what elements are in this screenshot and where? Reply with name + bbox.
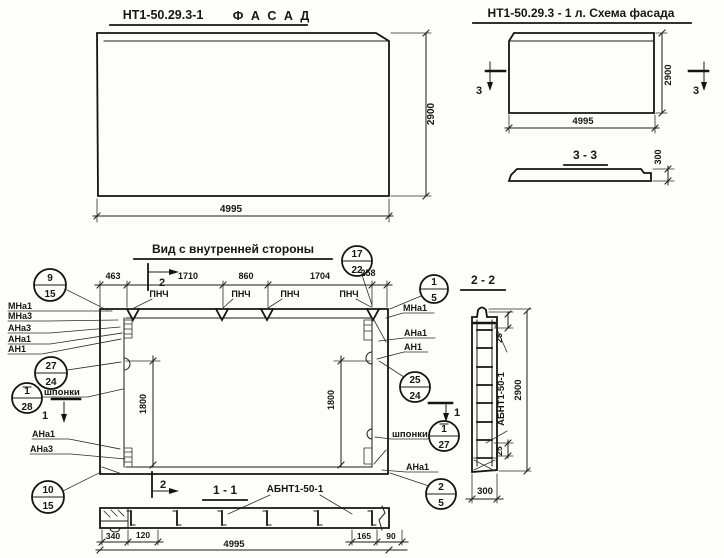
label-an1-right: АН1 — [404, 342, 422, 352]
drawing-sheet: НТ1-50.29.3-1 Ф А С А Д 4995 2900 НТ1-50… — [0, 0, 724, 558]
loop-label-1: ПНЧ — [149, 289, 168, 299]
scheme-dim-height: 2900 — [663, 64, 674, 85]
dim-300-section: 300 — [477, 486, 493, 497]
callout-9-15: 9 15 — [34, 269, 107, 310]
section-3-3-dimension: 300 — [653, 149, 674, 185]
keys-label-right: шпонки — [392, 429, 428, 440]
callout-17-22-bottom: 22 — [351, 265, 363, 276]
section-3-3-title: 3 - 3 — [564, 148, 607, 165]
inner-section1-marker-left: 1 — [42, 399, 80, 423]
label-ana1-left-lower: АНа1 — [32, 429, 55, 439]
part-label-abnt: АБНТ1-50-1 — [496, 371, 507, 426]
callout-10-15-top: 10 — [42, 485, 54, 496]
callout-1-28-bottom: 28 — [21, 402, 33, 413]
dim-90: 90 — [386, 531, 396, 541]
callout-27-24: 27 24 — [35, 357, 121, 389]
callout-25-24: 25 24 — [379, 361, 430, 402]
facade-dim-height: 2900 — [426, 102, 437, 125]
scheme-height-dimension: 2900 — [656, 30, 674, 116]
callout-10-15-bottom: 15 — [42, 501, 54, 512]
drawing-canvas: НТ1-50.29.3-1 Ф А С А Д 4995 2900 НТ1-50… — [0, 0, 724, 558]
scheme-dim-width: 4995 — [572, 116, 594, 127]
dim-2900-section: 2900 — [513, 379, 524, 400]
callout-1-27-top: 1 — [441, 424, 447, 435]
callout-1-28-top: 1 — [24, 386, 30, 397]
label-ana3-left-lower: АНа3 — [30, 444, 53, 454]
dim-463: 463 — [105, 271, 120, 281]
inner-panel-outline — [100, 309, 388, 474]
dim-25-top: 25 — [494, 333, 504, 343]
scheme-title: НТ1-50.29.3 - 1 л. Схема фасада — [473, 6, 691, 23]
section-1-mark-right: 1 — [454, 407, 460, 419]
section-2-2-view: 2 - 2 АБНТ1-50-1 25 25 — [461, 273, 531, 503]
facade-title: НТ1-50.29.3-1 Ф А С А Д — [110, 8, 311, 25]
callout-27-24-top: 27 — [45, 361, 57, 372]
callout-25-24-top: 25 — [409, 375, 421, 386]
loop-label-2: ПНЧ — [231, 289, 250, 299]
label-mna3-left: МНа3 — [8, 311, 32, 321]
inner-right-edge-profile — [364, 320, 386, 464]
section-1-1-view: 1 - 1 АБНТ1-50-1 340 120 165 90 — [96, 483, 408, 553]
section-3-mark-right: 3 — [693, 85, 699, 97]
section-2-2-dim-bottom: 25 — [494, 440, 513, 459]
inner-left-edge-profile — [124, 320, 132, 466]
callout-1-27-bottom: 27 — [438, 440, 450, 451]
scheme-section-marker-right: 3 — [689, 62, 708, 97]
part-label-abnt-plan: АБНТ1-50-1 — [267, 484, 324, 495]
section-1-1-title: 1 - 1 — [203, 483, 247, 500]
inner-top-dimensions: 463 1710 860 1704 258 — [95, 268, 392, 307]
callout-10-15: 10 15 — [32, 472, 101, 513]
callout-9-15-bottom: 15 — [44, 289, 56, 300]
inner-section2-marker-top: 2 — [148, 264, 179, 290]
dim-1704: 1704 — [310, 271, 330, 281]
inner-section1-marker-right: 1 — [429, 403, 460, 422]
callout-25-24-bottom: 24 — [409, 391, 421, 402]
label-ana3-left: АНа3 — [8, 323, 31, 333]
inner-section2-marker-bottom: 2 — [152, 472, 179, 497]
section-2-2-dim-width: 300 — [466, 474, 503, 503]
dim-25-bottom: 25 — [494, 446, 504, 456]
label-an1-left: АН1 — [8, 344, 26, 354]
section-1-mark-left: 1 — [42, 410, 48, 422]
label-ana1-left: АНа1 — [8, 334, 31, 344]
facade-view: НТ1-50.29.3-1 Ф А С А Д 4995 2900 — [93, 8, 437, 222]
facade-dim-width: 4995 — [220, 204, 243, 215]
label-mna1-left: МНа1 — [8, 301, 32, 311]
inner-title-text: Вид с внутренней стороны — [152, 242, 314, 256]
section-2-2-dim-top: 25 — [489, 311, 513, 343]
section-1-1-dims: 340 120 165 90 4995 — [96, 530, 408, 553]
label-ana1-right-lower: АНа1 — [406, 462, 429, 472]
section-3-3-dim-thickness: 300 — [653, 149, 663, 164]
scheme-width-dimension: 4995 — [505, 115, 659, 133]
section-1-1-part-label: АБНТ1-50-1 — [228, 484, 352, 514]
facade-height-dimension: 2900 — [391, 30, 437, 199]
facade-title-code: НТ1-50.29.3-1 — [123, 8, 204, 22]
section-2-2-title-text: 2 - 2 — [471, 273, 495, 287]
callout-1-5-bottom: 5 — [431, 293, 437, 304]
dim-340: 340 — [106, 531, 120, 541]
section-1-1-title-text: 1 - 1 — [213, 483, 237, 497]
scheme-title-text: НТ1-50.29.3 - 1 л. Схема фасада — [488, 6, 675, 20]
callout-2-5-bottom: 5 — [438, 498, 444, 509]
dim-1800-right: 1800 — [326, 390, 336, 410]
scheme-section-marker-left: 3 — [476, 62, 505, 97]
callout-2-5: 2 5 — [390, 473, 456, 509]
dim-1710: 1710 — [178, 271, 198, 281]
section-3-3-view: 3 - 3 300 — [509, 148, 674, 185]
dim-120: 120 — [136, 530, 150, 540]
dim-860: 860 — [238, 271, 253, 281]
callout-17-22-top: 17 — [351, 249, 363, 260]
keys-label-left: шпонки — [44, 387, 80, 398]
label-mna1-right: МНа1 — [403, 303, 427, 313]
section-1-1-rebar-marks — [127, 511, 376, 525]
dim-4995-plan: 4995 — [223, 539, 245, 550]
inner-dim-1800-left: 1800 — [126, 356, 160, 468]
inner-dim-1800-right: 1800 — [326, 356, 370, 468]
scheme-view: НТ1-50.29.3 - 1 л. Схема фасада 3 3 2900 — [473, 6, 708, 133]
section-3-mark-left: 3 — [476, 85, 482, 97]
dim-165: 165 — [357, 531, 371, 541]
callout-1-5-top: 1 — [431, 277, 437, 288]
section-3-3-slab — [509, 169, 651, 181]
facade-width-dimension: 4995 — [93, 199, 393, 222]
label-ana1-right: АНа1 — [404, 328, 427, 338]
loop-label-4: ПНЧ — [339, 289, 358, 299]
callout-9-15-top: 9 — [47, 273, 53, 284]
scheme-outline — [509, 33, 654, 113]
inner-lifting-loop-labels: ПНЧ ПНЧ ПНЧ ПНЧ — [134, 289, 371, 308]
inner-view: Вид с внутренней стороны 2 463 1710 860 … — [8, 242, 460, 513]
callout-2-5-top: 2 — [438, 482, 444, 493]
facade-title-word: Ф А С А Д — [233, 9, 312, 23]
section-2-2-title: 2 - 2 — [461, 273, 505, 290]
section-3-3-title-text: 3 - 3 — [573, 148, 597, 162]
section-2-mark-top: 2 — [159, 277, 165, 289]
facade-outline — [97, 33, 389, 196]
dim-1800-left: 1800 — [138, 394, 148, 414]
loop-label-3: ПНЧ — [280, 289, 299, 299]
inner-title: Вид с внутренней стороны — [134, 242, 332, 259]
section-2-mark-bottom: 2 — [160, 479, 166, 491]
inner-left-labels: МНа1 МНа3 АНа3 АНа1 АН1 АНа1 АНа3 — [8, 301, 125, 459]
